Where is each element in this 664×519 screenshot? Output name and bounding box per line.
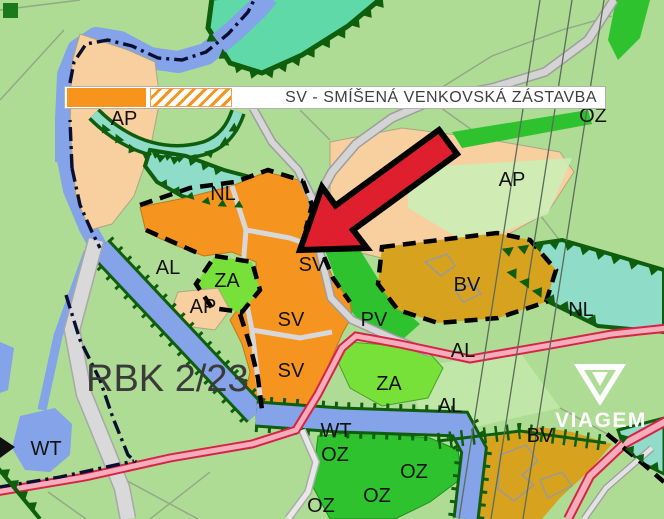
zone-label-oz: OZ	[307, 495, 335, 517]
zone-label-oz: OZ	[400, 461, 428, 483]
zone-label-bv: BV	[527, 425, 554, 447]
zone-label-ap: AP	[499, 169, 526, 191]
zone-label-al: AL	[438, 395, 462, 417]
zone-label-sv: SV	[299, 254, 326, 276]
zone-label-za: ZA	[376, 373, 402, 395]
legend-swatch-hatched	[150, 88, 232, 107]
zone-label-za: ZA	[214, 270, 240, 292]
zone-label-wt: WT	[320, 420, 351, 442]
zone-label-sv: SV	[278, 360, 305, 382]
legend-swatch-solid	[67, 88, 146, 107]
zone-label-oz: OZ	[321, 444, 349, 466]
zone-label-ap: AP	[190, 296, 217, 318]
zone-label-al: AL	[156, 257, 180, 279]
zone-label-nl: NL	[568, 299, 594, 321]
zone-label-wt: WT	[30, 438, 61, 460]
map-corner-mark	[3, 3, 18, 18]
legend-bar: SV - SMÍŠENÁ VENKOVSKÁ ZÁSTAVBA	[64, 86, 606, 109]
viagem-brand-text: VIAGEM	[555, 409, 647, 432]
map-canvas[interactable]: APNLALZAAPSVSVPVSVAPAPOZBVNLALZAALWTWTOZ…	[0, 0, 664, 519]
zone-label-sv: SV	[278, 309, 305, 331]
zoning-map-screenshot: APNLALZAAPSVSVPVSVAPAPOZBVNLALZAALWTWTOZ…	[0, 0, 664, 519]
zone-label-bv: BV	[454, 274, 481, 296]
zone-label-nl: NL	[210, 183, 236, 205]
zone-label-ap: AP	[111, 108, 138, 130]
rbk-corridor-label: RBK 2/23	[86, 358, 249, 400]
legend-label: SV - SMÍŠENÁ VENKOVSKÁ ZÁSTAVBA	[285, 89, 597, 107]
zone-label-oz: OZ	[363, 485, 391, 507]
zone-label-pv: PV	[361, 309, 388, 331]
zone-label-al: AL	[451, 340, 475, 362]
